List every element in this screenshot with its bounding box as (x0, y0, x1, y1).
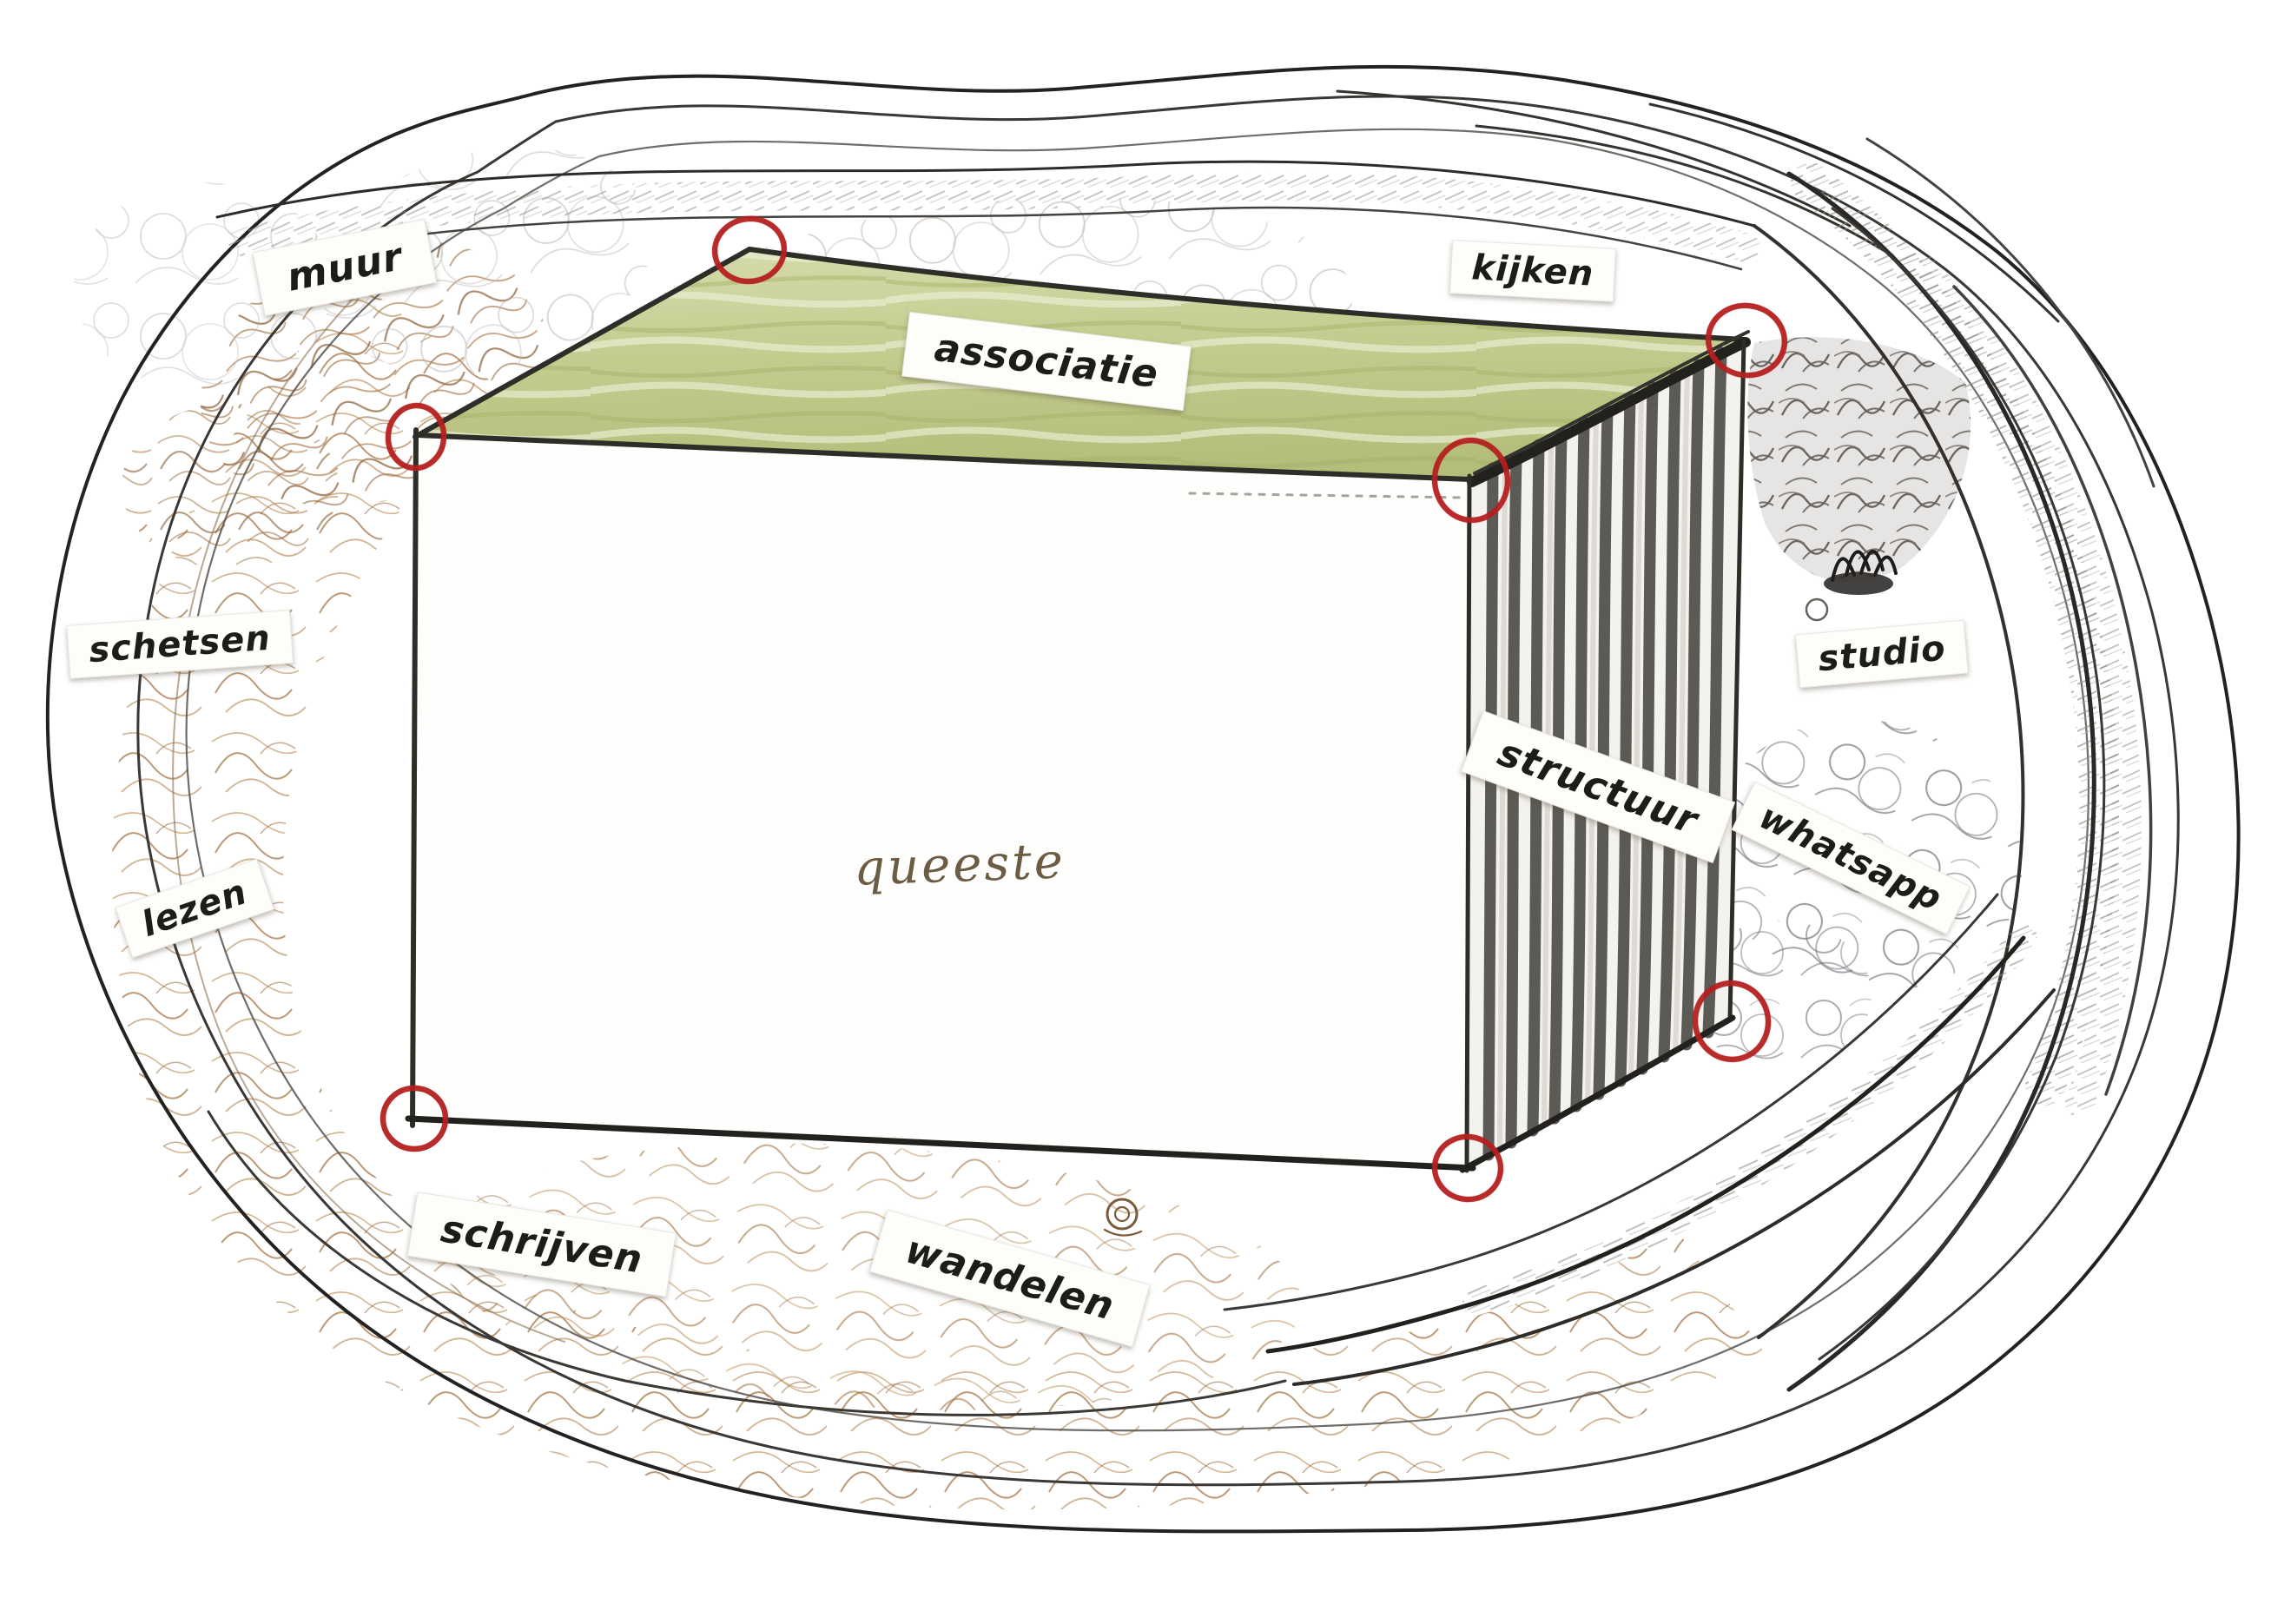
wall-edge-left (1467, 476, 1469, 1171)
box-front-face (408, 430, 1473, 1168)
front-face-fill (414, 435, 1470, 1167)
center-word-queeste: queeste (853, 833, 1066, 896)
front-edge-left (413, 430, 416, 1126)
drawing-canvas: muur kijken associatie schetsen lezen st… (0, 0, 2271, 1624)
graphite-dark-patch-tone (1747, 337, 1971, 582)
label-kijken: kijken (1449, 240, 1616, 302)
